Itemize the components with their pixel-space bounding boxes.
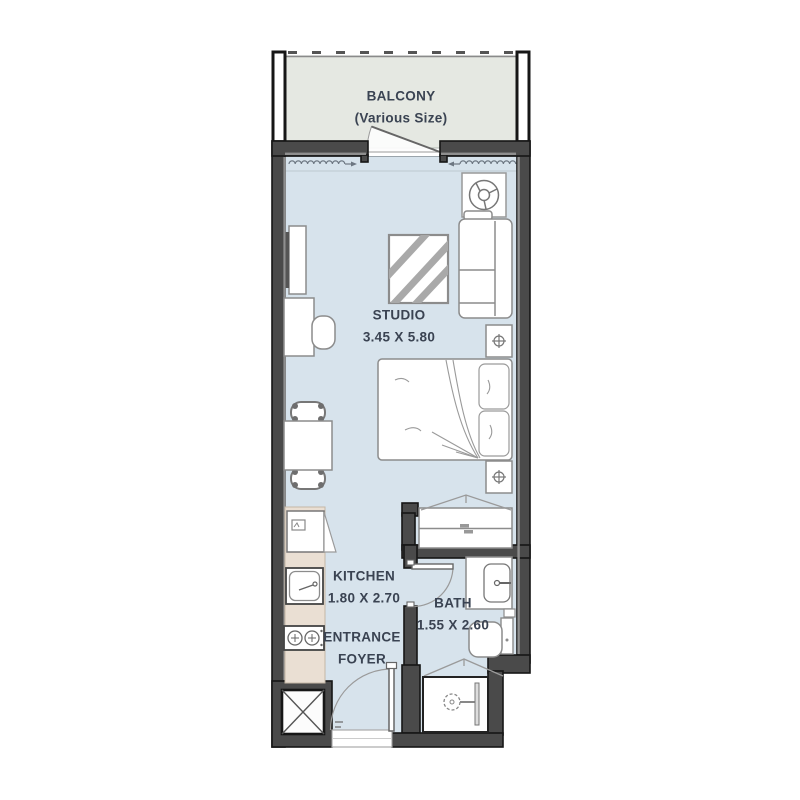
- rug: [383, 229, 456, 311]
- dining-set: [284, 402, 332, 489]
- balcony-post-left: [273, 52, 285, 150]
- desk-chair: [312, 316, 335, 349]
- dining-table: [284, 421, 332, 470]
- wall-bottom-right: [392, 733, 503, 747]
- wall-shower-right: [488, 671, 503, 735]
- entrance-foyer-label: ENTRANCE FOYER: [323, 627, 400, 672]
- wall-jamb-right: [440, 155, 447, 162]
- pillow: [479, 364, 509, 409]
- outside-patch: [503, 670, 533, 750]
- foyer-name-line2: FOYER: [323, 649, 400, 671]
- floorplan-canvas: BALCONY (Various Size) STUDIO 3.45 X 5.8…: [0, 0, 800, 800]
- kitchen-sink: [286, 568, 323, 604]
- shower-screen: [475, 683, 479, 725]
- dining-chair-bottom: [291, 468, 325, 489]
- wall-left: [272, 141, 285, 747]
- bedside-table-top: [486, 325, 512, 357]
- foyer-name-line1: ENTRANCE: [323, 627, 400, 649]
- service-shaft: [282, 690, 324, 734]
- tv-unit: [286, 226, 307, 294]
- kitchen-label: KITCHEN 1.80 X 2.70: [328, 566, 400, 611]
- wall-foyer-shower: [402, 665, 420, 733]
- studio-dimensions: 3.45 X 5.80: [363, 327, 435, 349]
- bedside-table-bottom: [486, 461, 512, 493]
- hob: [284, 626, 324, 650]
- dining-chair-top: [291, 402, 325, 423]
- bath-name: BATH: [417, 593, 489, 615]
- balcony-label: BALCONY (Various Size): [355, 86, 448, 131]
- tv: [286, 232, 290, 288]
- bath-dimensions: 1.55 X 2.60: [417, 615, 489, 637]
- double-bed: [378, 359, 512, 460]
- kitchen-name: KITCHEN: [328, 566, 400, 588]
- kitchen-dimensions: 1.80 X 2.70: [328, 588, 400, 610]
- pillow: [479, 411, 509, 456]
- balcony-post-right: [517, 52, 529, 150]
- wall-jamb-left: [361, 155, 368, 162]
- balcony-name: BALCONY: [355, 86, 448, 108]
- wall-bath-left-lower: [404, 606, 417, 667]
- studio-name: STUDIO: [363, 305, 435, 327]
- balcony-size-note: (Various Size): [355, 108, 448, 130]
- studio-label: STUDIO 3.45 X 5.80: [363, 305, 435, 350]
- bath-label: BATH 1.55 X 2.60: [417, 593, 489, 638]
- sofa: [459, 211, 512, 318]
